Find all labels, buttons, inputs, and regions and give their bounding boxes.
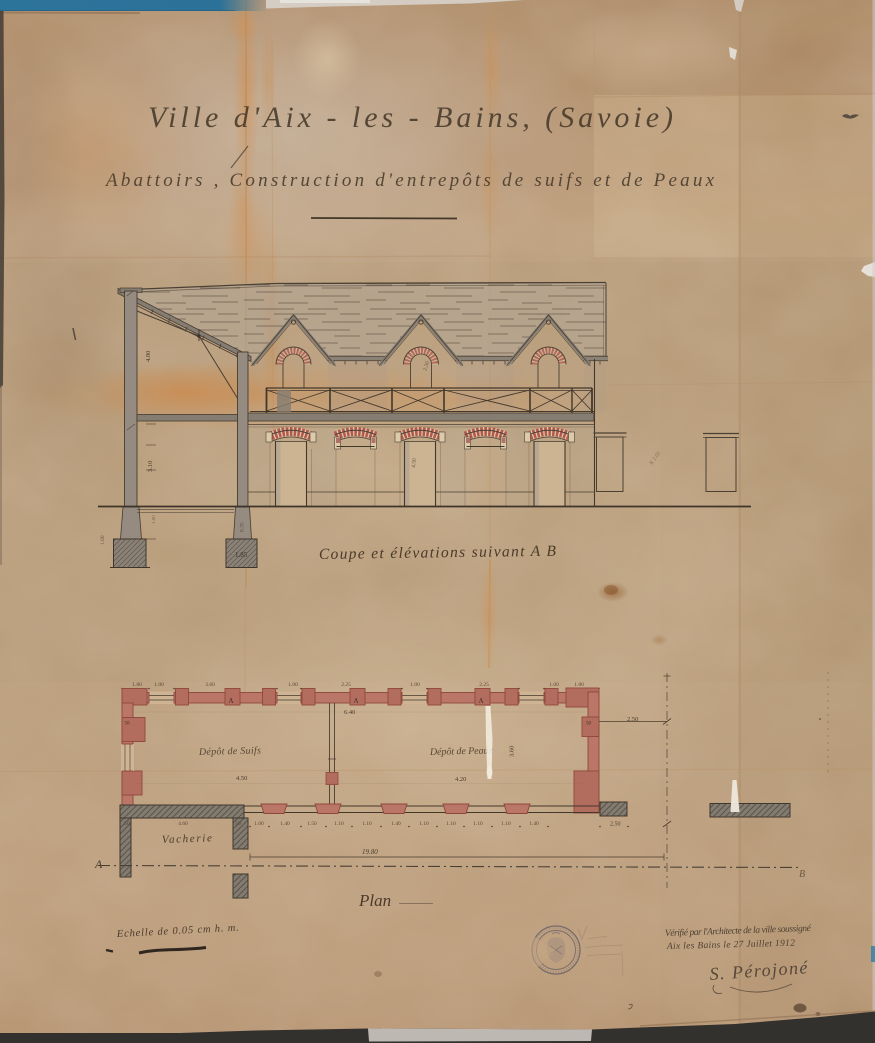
svg-text:2.25: 2.25	[479, 682, 489, 688]
svg-text:1.40: 1.40	[280, 821, 290, 827]
svg-text:6.40: 6.40	[344, 709, 355, 716]
svg-text:50: 50	[586, 722, 592, 727]
svg-text:1.80: 1.80	[132, 682, 142, 688]
svg-text:1.10: 1.10	[501, 821, 511, 827]
svg-text:50: 50	[124, 821, 130, 827]
svg-text:Dépôt de Peaux: Dépôt de Peaux	[429, 745, 494, 758]
svg-text:50: 50	[235, 821, 241, 827]
svg-text:1.10: 1.10	[362, 821, 372, 827]
svg-text:1.80: 1.80	[574, 682, 584, 688]
svg-text:A: A	[479, 697, 484, 705]
svg-text:19.80: 19.80	[362, 848, 378, 856]
svg-text:1.85: 1.85	[235, 551, 248, 559]
svg-text:Dépôt de Suifs: Dépôt de Suifs	[198, 745, 261, 758]
svg-text:1.40: 1.40	[391, 821, 401, 827]
svg-text:1.10: 1.10	[446, 821, 456, 827]
svg-text:B: B	[799, 869, 805, 880]
svg-text:1.00: 1.00	[288, 682, 298, 688]
svg-text:2.50: 2.50	[610, 822, 621, 828]
svg-text:1.00: 1.00	[152, 515, 157, 524]
svg-text:Coupe et élévations suivant A: Coupe et élévations suivant A B	[319, 543, 557, 563]
svg-text:1.00: 1.00	[254, 821, 264, 827]
svg-text:2.25: 2.25	[341, 682, 351, 688]
svg-text:4.60: 4.60	[178, 821, 188, 827]
svg-text:Plan: Plan	[358, 891, 391, 910]
svg-text:1.00: 1.00	[154, 682, 164, 688]
svg-text:Vacherie: Vacherie	[162, 832, 212, 846]
svg-text:1.10: 1.10	[473, 821, 483, 827]
svg-text:4.50: 4.50	[411, 458, 418, 468]
svg-text:1.40: 1.40	[529, 821, 539, 827]
svg-text:4.20: 4.20	[455, 776, 466, 783]
svg-text:Abattoirs , Construction d'ent: Abattoirs , Construction d'entrepôts de …	[104, 170, 715, 191]
svg-text:1.10: 1.10	[419, 821, 429, 827]
svg-text:1.00: 1.00	[549, 682, 559, 688]
svg-text:4.50: 4.50	[236, 775, 247, 782]
svg-text:1.00: 1.00	[410, 682, 420, 688]
svg-text:2.50: 2.50	[627, 716, 638, 723]
svg-text:A: A	[354, 697, 359, 705]
svg-text:0.35: 0.35	[240, 522, 246, 532]
svg-text:A: A	[229, 697, 234, 705]
svg-text:3.60: 3.60	[509, 746, 516, 757]
svg-text:3.60: 3.60	[205, 682, 215, 688]
svg-text:50: 50	[125, 722, 131, 727]
svg-text:1.10: 1.10	[334, 821, 344, 827]
svg-text:1.00: 1.00	[100, 535, 106, 545]
svg-text:A: A	[94, 857, 103, 871]
svg-text:4.80: 4.80	[145, 351, 152, 362]
svg-text:1.50: 1.50	[307, 821, 317, 827]
